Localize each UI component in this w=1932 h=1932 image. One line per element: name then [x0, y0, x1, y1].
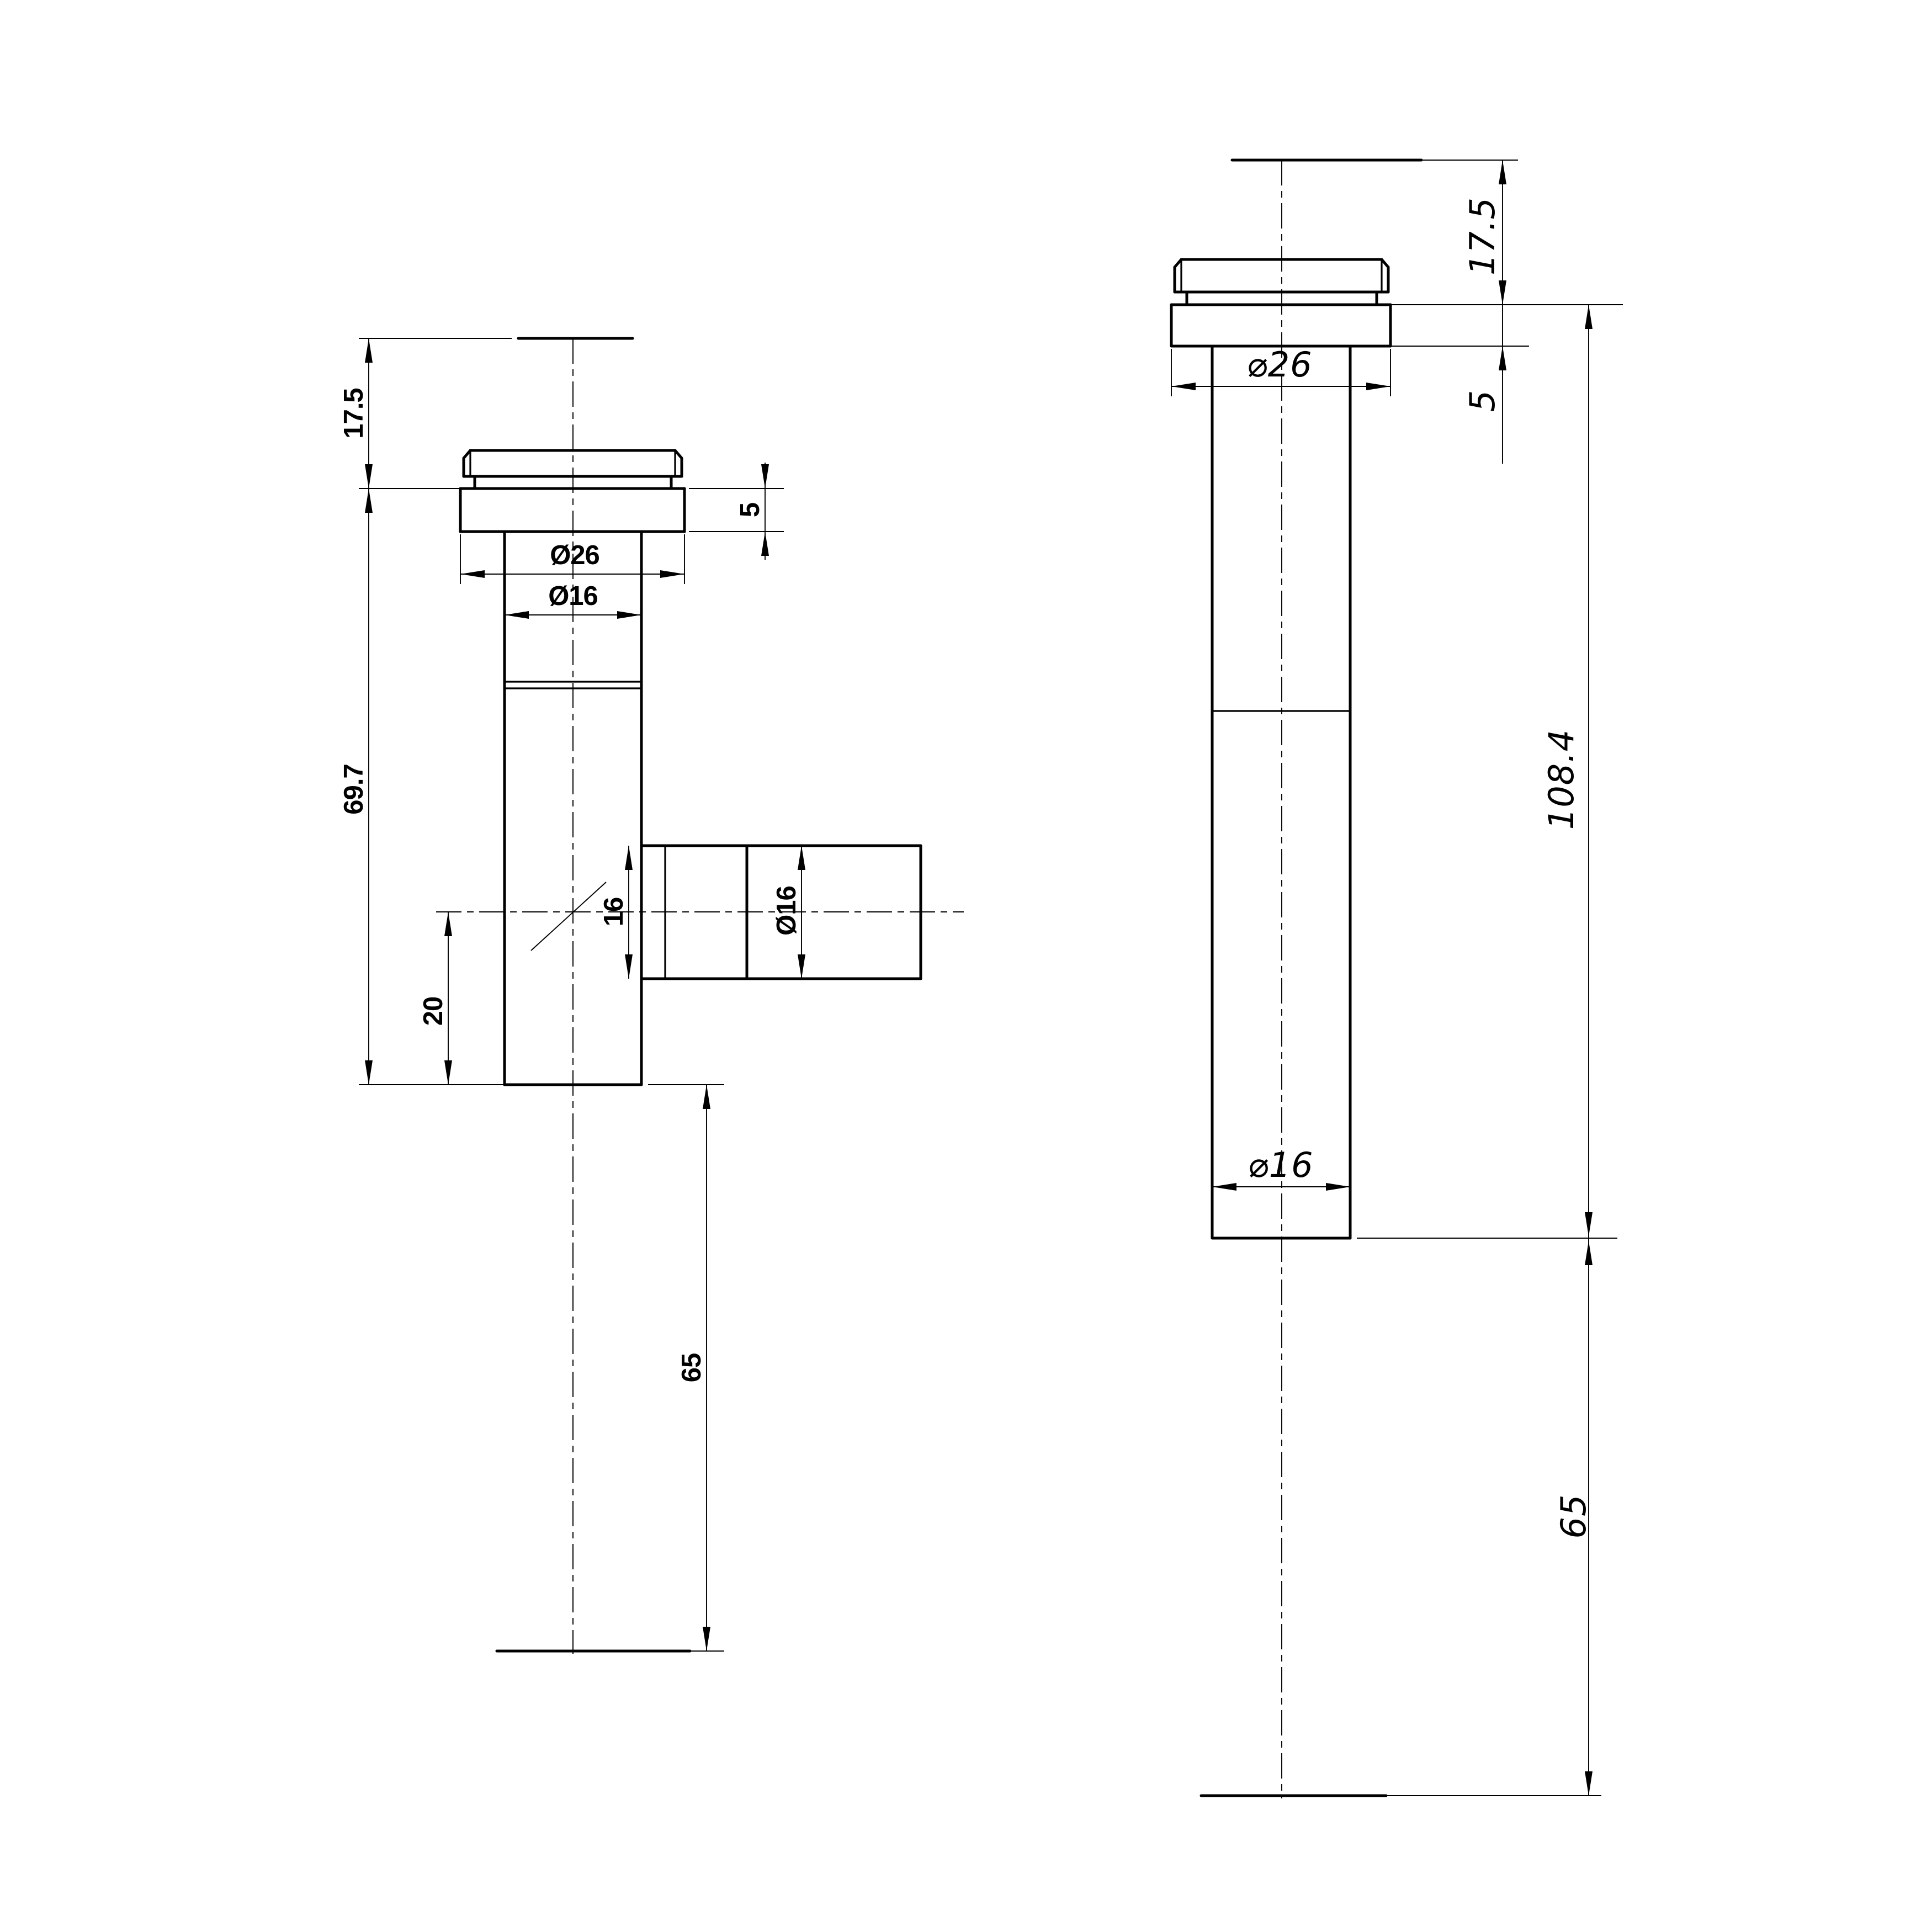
- side-object-lines: [1171, 160, 1601, 1796]
- front-centerlines: [436, 338, 964, 1654]
- arrow-65-top: [703, 1085, 710, 1109]
- front-object-lines: [359, 338, 921, 1651]
- side-cap-chamfer-right: [1382, 259, 1388, 267]
- arrow-side-175-bottom: [1499, 280, 1506, 305]
- dim-label-front-cap-height: 17.5: [339, 388, 369, 438]
- dim-label-side-tube-diameter: ⌀16: [1248, 1145, 1313, 1185]
- front-dimension-lines: [359, 338, 802, 1651]
- arrow-outletdia-bottom: [798, 954, 805, 979]
- arrow-side-1084-top: [1585, 305, 1593, 329]
- front-dimension-labels: 17.5 69.7 20 16 Ø16 5 Ø26 Ø16 65: [339, 388, 802, 1382]
- arrow-side-1084-bottom: [1585, 1212, 1593, 1236]
- arrow-side-65-bottom: [1585, 1771, 1593, 1796]
- arrow-65-bottom: [703, 1627, 710, 1651]
- dim-label-front-flange-thickness: 5: [735, 503, 765, 517]
- dim-label-front-outlet-diameter: Ø16: [772, 886, 802, 936]
- side-dimension-lines: [1171, 160, 1623, 1796]
- dim-label-side-tail-length: 65: [1553, 1494, 1594, 1539]
- arrow-dia16-left: [505, 611, 529, 619]
- front-arrowheads: [365, 338, 805, 1651]
- arrow-20-bottom: [444, 1060, 452, 1085]
- dim-label-front-tube-diameter: Ø16: [548, 581, 598, 611]
- arrow-side-5-outside: [1499, 346, 1506, 370]
- arrow-697-top: [365, 489, 373, 513]
- dim-label-side-cap-height: 17.5: [1462, 197, 1503, 275]
- dim-label-front-outlet-offset: 20: [418, 997, 448, 1026]
- arrow-outletdia-top: [798, 846, 805, 870]
- arrow-16-top: [625, 846, 633, 870]
- arrow-5-bottom-outside: [761, 532, 769, 556]
- arrow-175-bottom: [365, 464, 373, 489]
- arrow-side-dia16-right: [1326, 1183, 1350, 1191]
- front-diagonal-mark: [531, 882, 606, 951]
- dim-label-front-outlet-bore: 16: [599, 898, 629, 927]
- dim-label-front-tail-length: 65: [677, 1354, 707, 1383]
- arrow-175-top: [365, 338, 373, 363]
- drawing-canvas: 17.5 69.7 20 16 Ø16 5 Ø26 Ø16 65: [0, 0, 1932, 1932]
- dim-label-side-flange-diameter: ⌀26: [1246, 344, 1312, 385]
- front-cap-chamfer-right: [675, 450, 682, 458]
- dim-label-side-flange-thickness: 5: [1462, 390, 1503, 412]
- side-view: 17.5 5 ⌀26 108.4 ⌀16 65: [1171, 160, 1623, 1798]
- front-cap-chamfer-left: [464, 450, 470, 458]
- arrow-dia26-left: [460, 570, 485, 578]
- arrow-dia26-right: [660, 570, 684, 578]
- arrow-697-bottom: [365, 1060, 373, 1085]
- arrow-side-65-top: [1585, 1241, 1593, 1265]
- arrow-20-top: [444, 912, 452, 936]
- arrow-5-top-outside: [761, 464, 769, 489]
- arrow-side-175-top: [1499, 160, 1506, 184]
- arrow-side-dia16-left: [1212, 1183, 1236, 1191]
- dim-label-front-flange-diameter: Ø26: [550, 540, 599, 570]
- dim-label-front-body-length: 69.7: [339, 764, 369, 814]
- arrow-side-dia26-left: [1171, 383, 1196, 390]
- arrow-16-bottom: [625, 954, 633, 979]
- dim-label-side-overall-length: 108.4: [1541, 729, 1581, 830]
- side-cap-chamfer-left: [1175, 259, 1181, 267]
- side-arrowheads: [1171, 160, 1593, 1796]
- front-view: 17.5 69.7 20 16 Ø16 5 Ø26 Ø16 65: [339, 338, 964, 1654]
- arrow-side-dia26-right: [1366, 383, 1390, 390]
- arrow-dia16-right: [617, 611, 641, 619]
- side-dimension-labels: 17.5 5 ⌀26 108.4 ⌀16 65: [1246, 197, 1594, 1538]
- drawing-sheet: 17.5 69.7 20 16 Ø16 5 Ø26 Ø16 65: [0, 0, 1932, 1932]
